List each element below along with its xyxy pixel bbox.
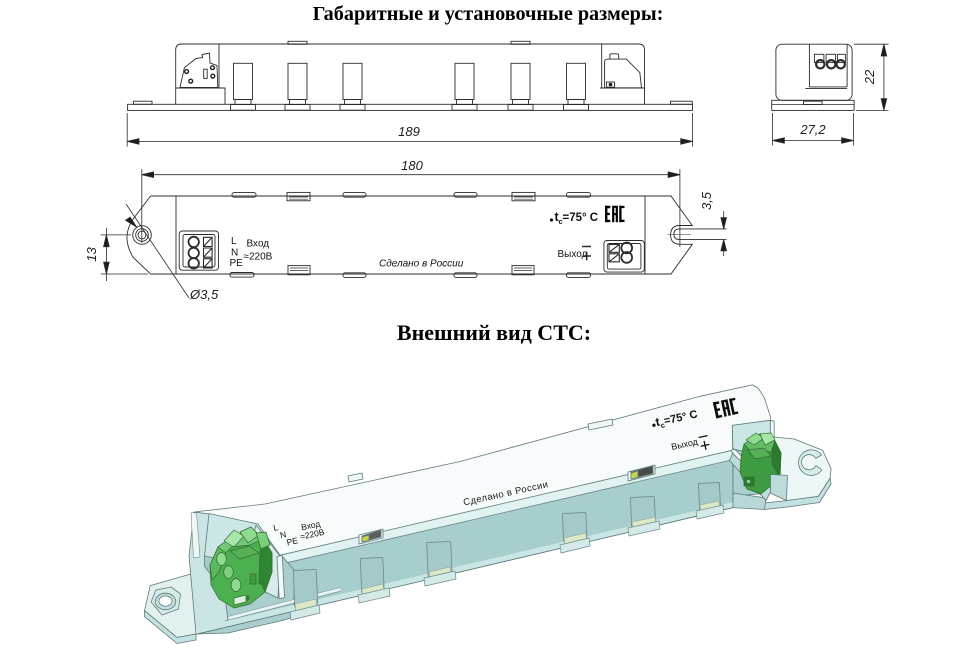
- svg-text:22: 22: [862, 69, 877, 85]
- svg-text:L: L: [231, 236, 237, 247]
- svg-text:3,5: 3,5: [699, 191, 714, 210]
- svg-text:PE: PE: [230, 258, 244, 269]
- svg-text:≈220В: ≈220В: [244, 252, 273, 263]
- svg-text:Габаритные и установочные разм: Габаритные и установочные размеры:: [313, 3, 664, 25]
- svg-text:27,2: 27,2: [799, 122, 826, 137]
- svg-text:Внешний вид СТС:: Внешний вид СТС:: [397, 320, 591, 345]
- svg-text:N: N: [231, 248, 238, 259]
- svg-text:=75° C: =75° C: [563, 212, 599, 224]
- svg-text:180: 180: [401, 158, 423, 173]
- svg-text:Вход: Вход: [247, 239, 270, 250]
- svg-text:Сделано в России: Сделано в России: [379, 259, 464, 270]
- svg-text:Выход: Выход: [558, 249, 588, 260]
- svg-text:Ø3,5: Ø3,5: [189, 287, 219, 302]
- svg-text:13: 13: [84, 247, 99, 262]
- svg-text:189: 189: [398, 124, 420, 139]
